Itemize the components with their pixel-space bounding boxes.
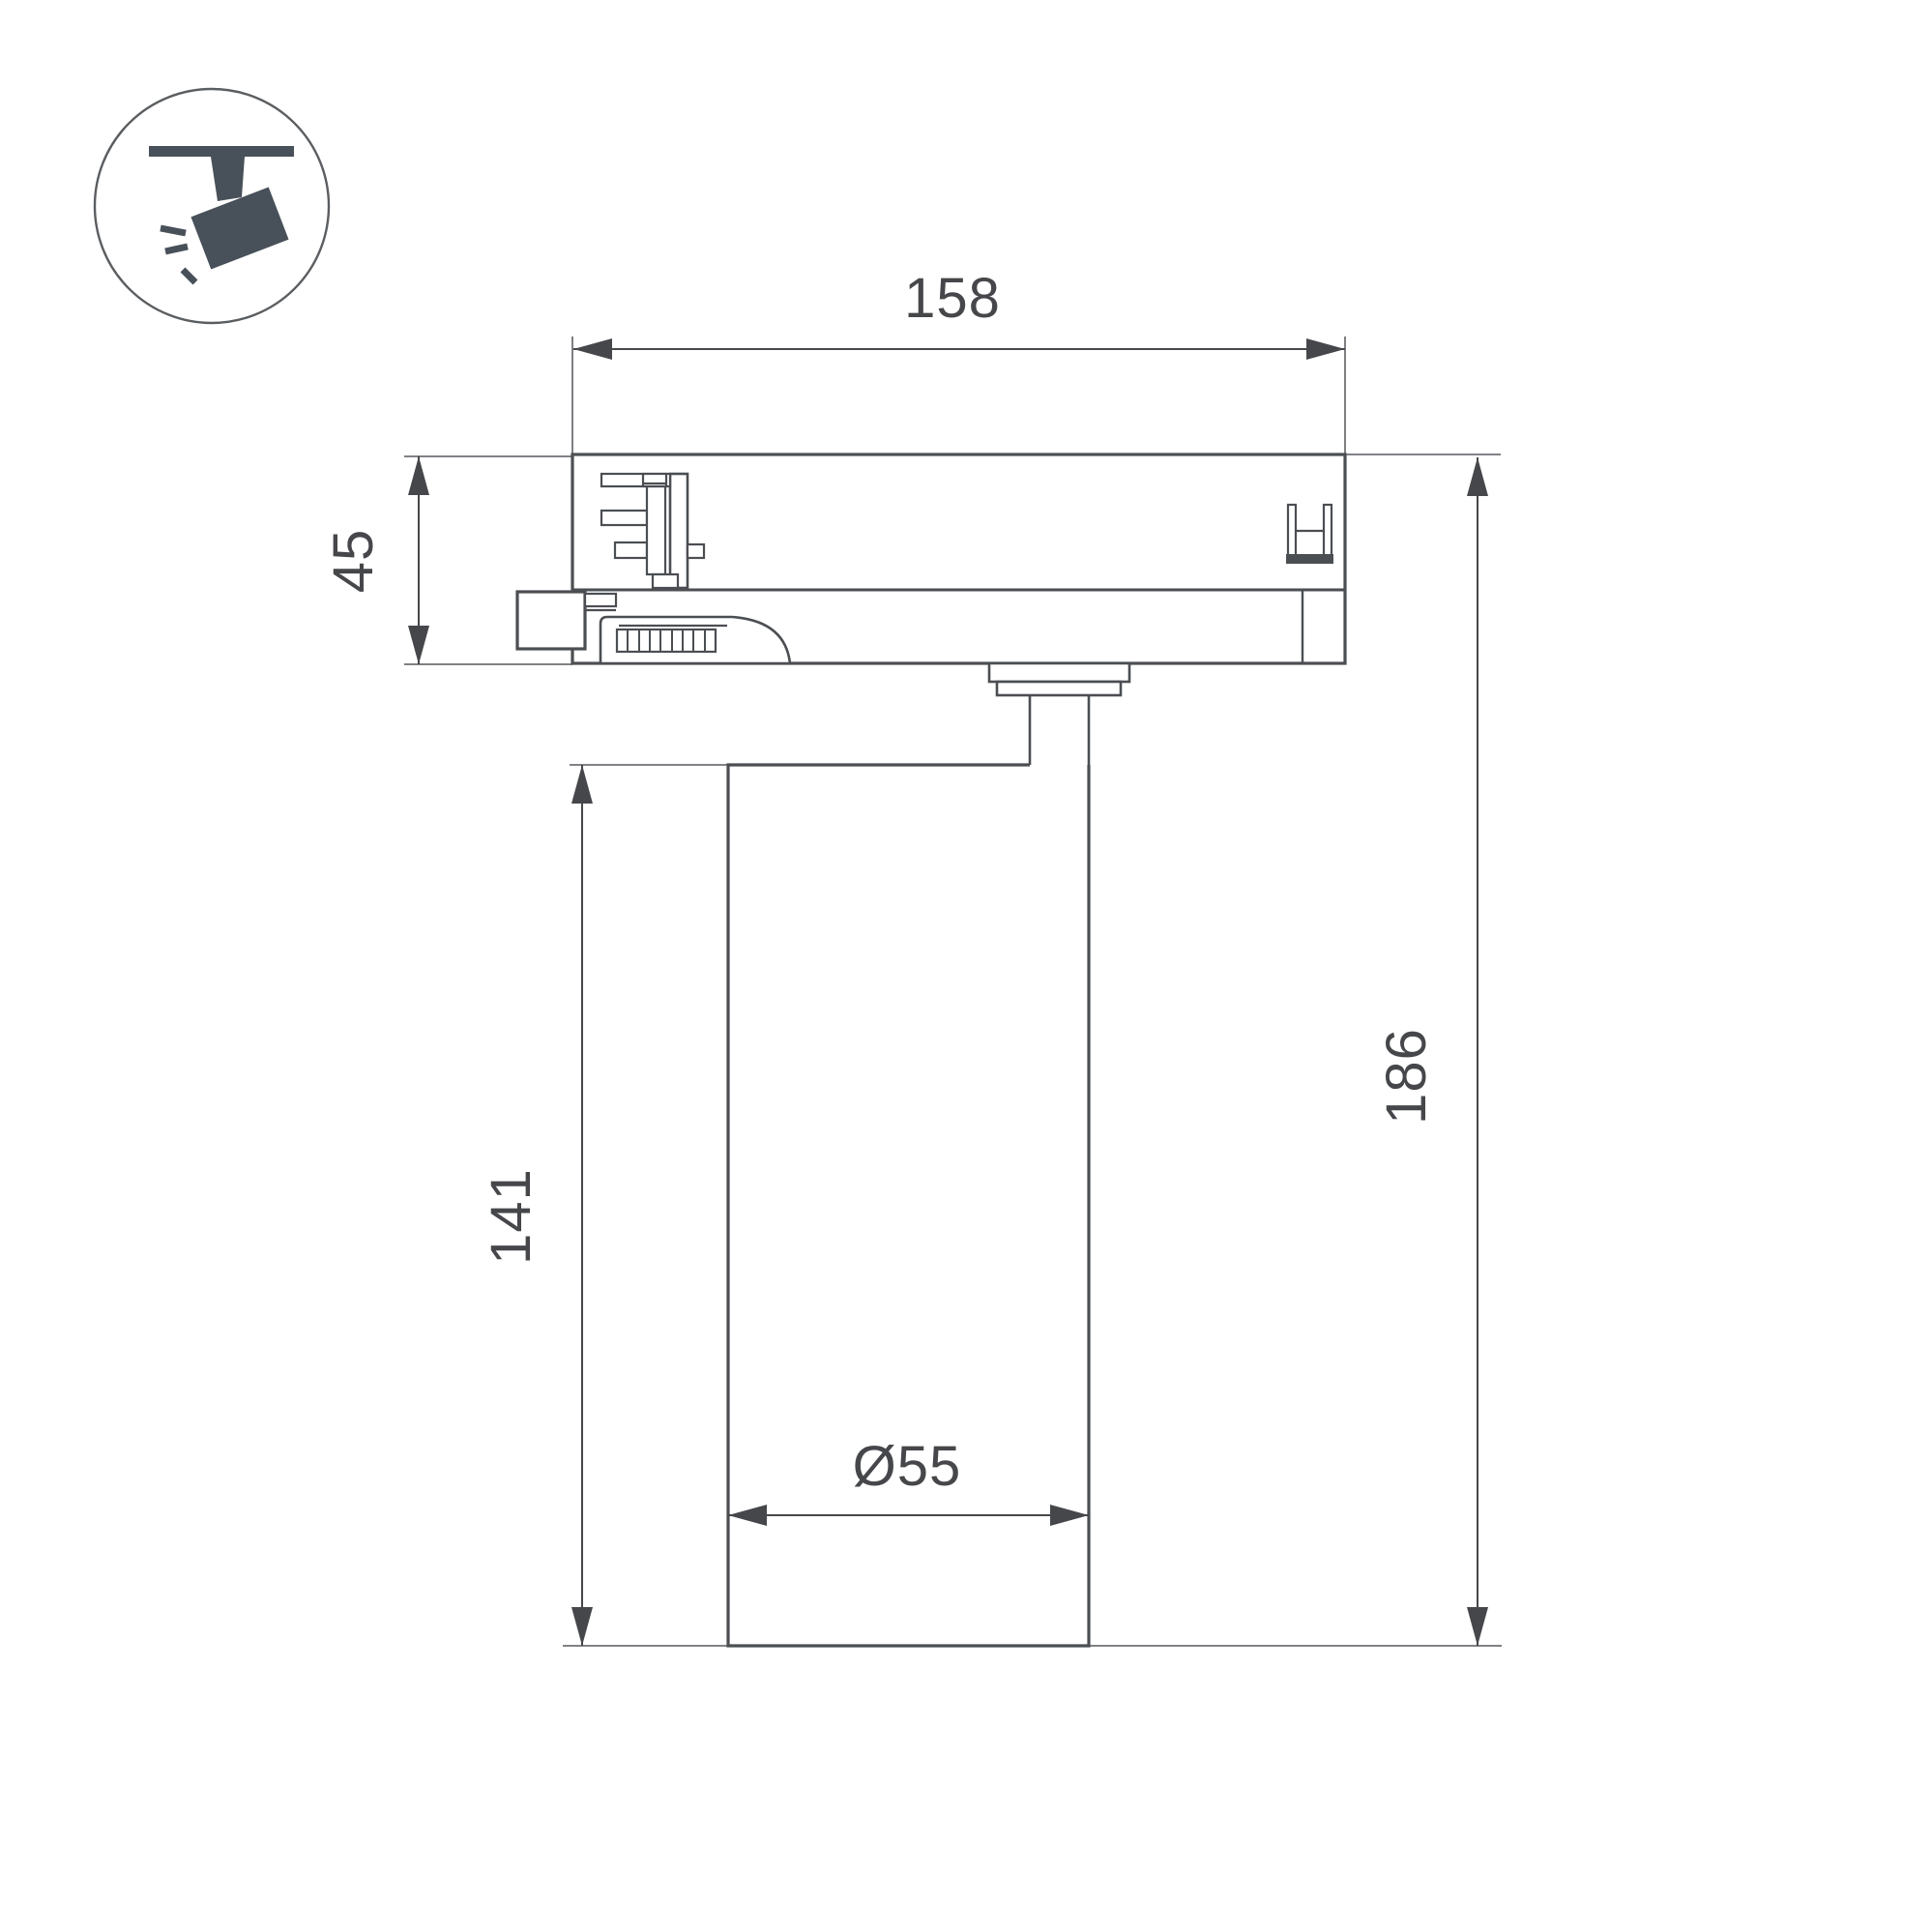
lamp-cylinder [728, 765, 1089, 1646]
track-adapter-side-view [517, 454, 1345, 663]
dim-track-width-label: 158 [904, 267, 1001, 330]
track-spotlight-badge [95, 89, 329, 323]
dimension-track-width: 158 [573, 267, 1345, 360]
dim-adapter-height-label: 45 [322, 529, 385, 594]
mount-plate-upper [989, 663, 1129, 682]
dim-diameter-label: Ø55 [853, 1435, 962, 1498]
dimension-adapter-height: 45 [322, 456, 429, 664]
swivel-mount [989, 663, 1129, 765]
technical-drawing-page: 158 45 141 186 Ø55 [0, 0, 1932, 1932]
dimension-body-height: 141 [480, 765, 593, 1646]
track-light-dimension-drawing: 158 45 141 186 Ø55 [0, 0, 1932, 1932]
dimension-total-height: 186 [1375, 457, 1488, 1646]
badge-circle [95, 89, 329, 323]
phase-switch-block [600, 617, 790, 663]
dim-total-height-label: 186 [1375, 1028, 1438, 1125]
mount-plate-lower [997, 682, 1121, 695]
switch-comb [617, 629, 716, 652]
cylinder-outline [728, 765, 1089, 1646]
dim-body-height-label: 141 [480, 1168, 542, 1265]
